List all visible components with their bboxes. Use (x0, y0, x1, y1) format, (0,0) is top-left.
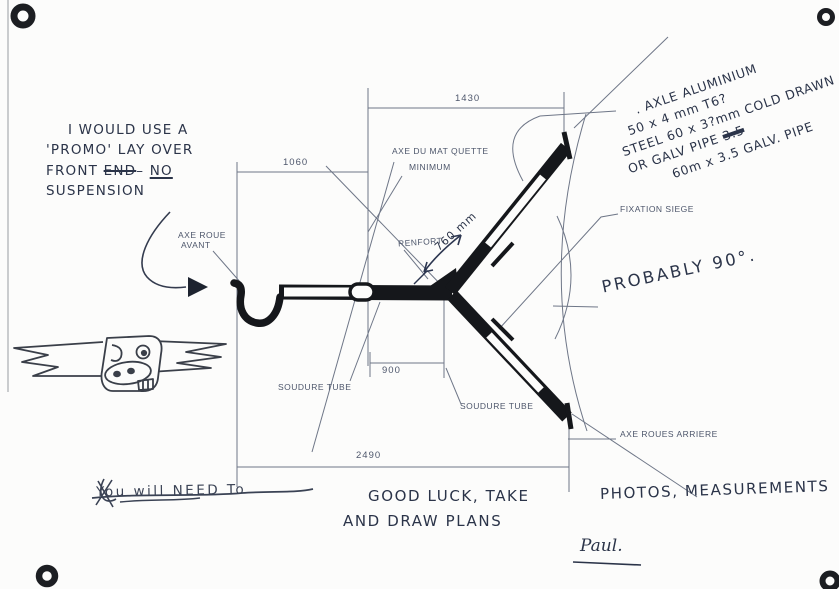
leader-weld-right (446, 368, 461, 404)
signature: Paul. (580, 536, 623, 556)
label-front-axle: AXE ROUE AVANT (178, 230, 226, 250)
axle-stub-lower (567, 403, 571, 429)
underlined-word: NO (150, 163, 173, 179)
suspension-arrow-head (188, 277, 208, 297)
punch-hole-icon-top-right (820, 11, 833, 24)
dim-1060: 1060 (283, 157, 308, 168)
mast-axis-line (312, 162, 394, 452)
dim-900: 900 (382, 365, 401, 376)
leader-renfort (404, 250, 428, 279)
punch-hole-icon-bottom-right (823, 574, 838, 589)
leader-mast-label (368, 176, 402, 232)
leader-weld-left (350, 302, 380, 381)
front-fork-hook (234, 283, 280, 323)
angle-arc-large (561, 114, 587, 431)
signature-underline (573, 562, 641, 565)
mast-slot (350, 284, 374, 300)
dim-2490: 2490 (356, 450, 381, 461)
message-part3: AND DRAW PLANS (343, 512, 502, 530)
label-weld-right: SOUDURE TUBE (460, 401, 533, 411)
seat-mount-tab-upper (492, 243, 513, 266)
punch-hole-icon-top-left (14, 7, 32, 25)
punch-hole-icon-bottom-left (39, 568, 55, 584)
leader-seat-fixation (499, 214, 618, 329)
message-part1: GOOD LUCK, TAKE (368, 487, 530, 505)
label-seat-fixation: FIXATION SIEGE (620, 204, 694, 214)
struck-word: END (104, 163, 137, 179)
scanned-sketch-page: 1430 1060 900 2490 AXE ROUE AVANT AXE DU… (0, 0, 839, 589)
label-weld-left: SOUDURE TUBE (278, 382, 351, 392)
label-mast-axis: AXE DU MAT QUETTE (392, 146, 489, 156)
winged-cow-doodle (14, 336, 226, 391)
dim-1430: 1430 (455, 93, 480, 104)
label-rear-axle: AXE ROUES ARRIERE (620, 429, 718, 439)
crossed-out-text: You will NEED To (96, 482, 246, 501)
doodle-left-wing (14, 342, 106, 376)
label-mast-minimum: MINIMUM (409, 162, 451, 172)
suspension-note: I WOULD USE A 'PROMO' LAY OVER FRONT END… (46, 120, 193, 201)
